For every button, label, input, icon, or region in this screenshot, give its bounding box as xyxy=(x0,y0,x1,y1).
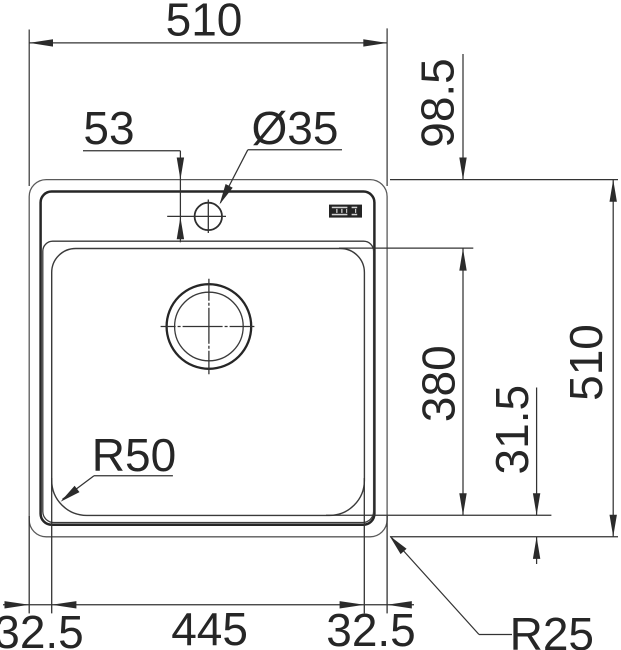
svg-text:380: 380 xyxy=(413,345,465,422)
svg-text:Ø35: Ø35 xyxy=(252,102,339,154)
svg-text:R25: R25 xyxy=(510,608,594,650)
svg-text:32.5: 32.5 xyxy=(0,606,84,650)
svg-text:R50: R50 xyxy=(92,429,176,481)
svg-text:31.5: 31.5 xyxy=(486,385,538,475)
svg-text:53: 53 xyxy=(83,102,134,154)
svg-text:98.5: 98.5 xyxy=(412,58,464,148)
svg-text:32.5: 32.5 xyxy=(326,604,416,650)
svg-text:510: 510 xyxy=(560,324,612,401)
svg-text:445: 445 xyxy=(171,603,248,650)
svg-text:510: 510 xyxy=(166,0,243,46)
